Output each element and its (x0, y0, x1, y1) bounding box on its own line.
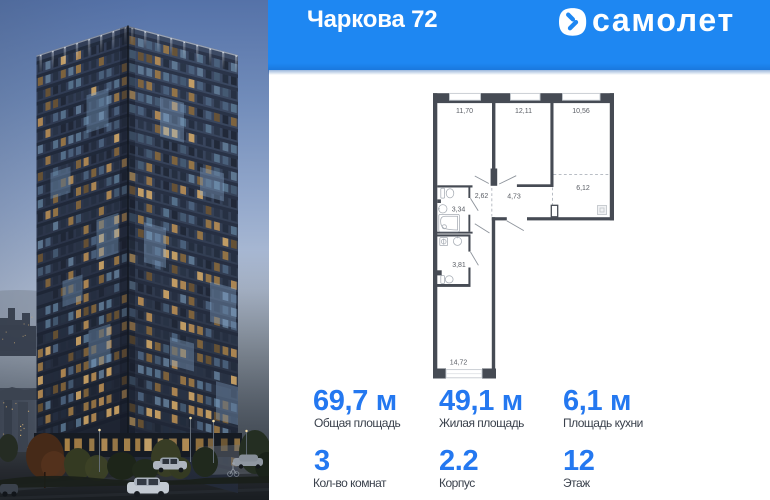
svg-text:11,70: 11,70 (456, 108, 473, 115)
svg-text:2,62: 2,62 (475, 193, 489, 200)
svg-text:3,81: 3,81 (452, 262, 466, 269)
svg-text:6,12: 6,12 (576, 185, 590, 192)
svg-text:12,11: 12,11 (515, 108, 532, 115)
svg-text:14,72: 14,72 (450, 360, 468, 367)
svg-text:3,34: 3,34 (452, 207, 466, 214)
svg-text:10,56: 10,56 (572, 108, 590, 115)
svg-text:4,73: 4,73 (507, 194, 521, 201)
